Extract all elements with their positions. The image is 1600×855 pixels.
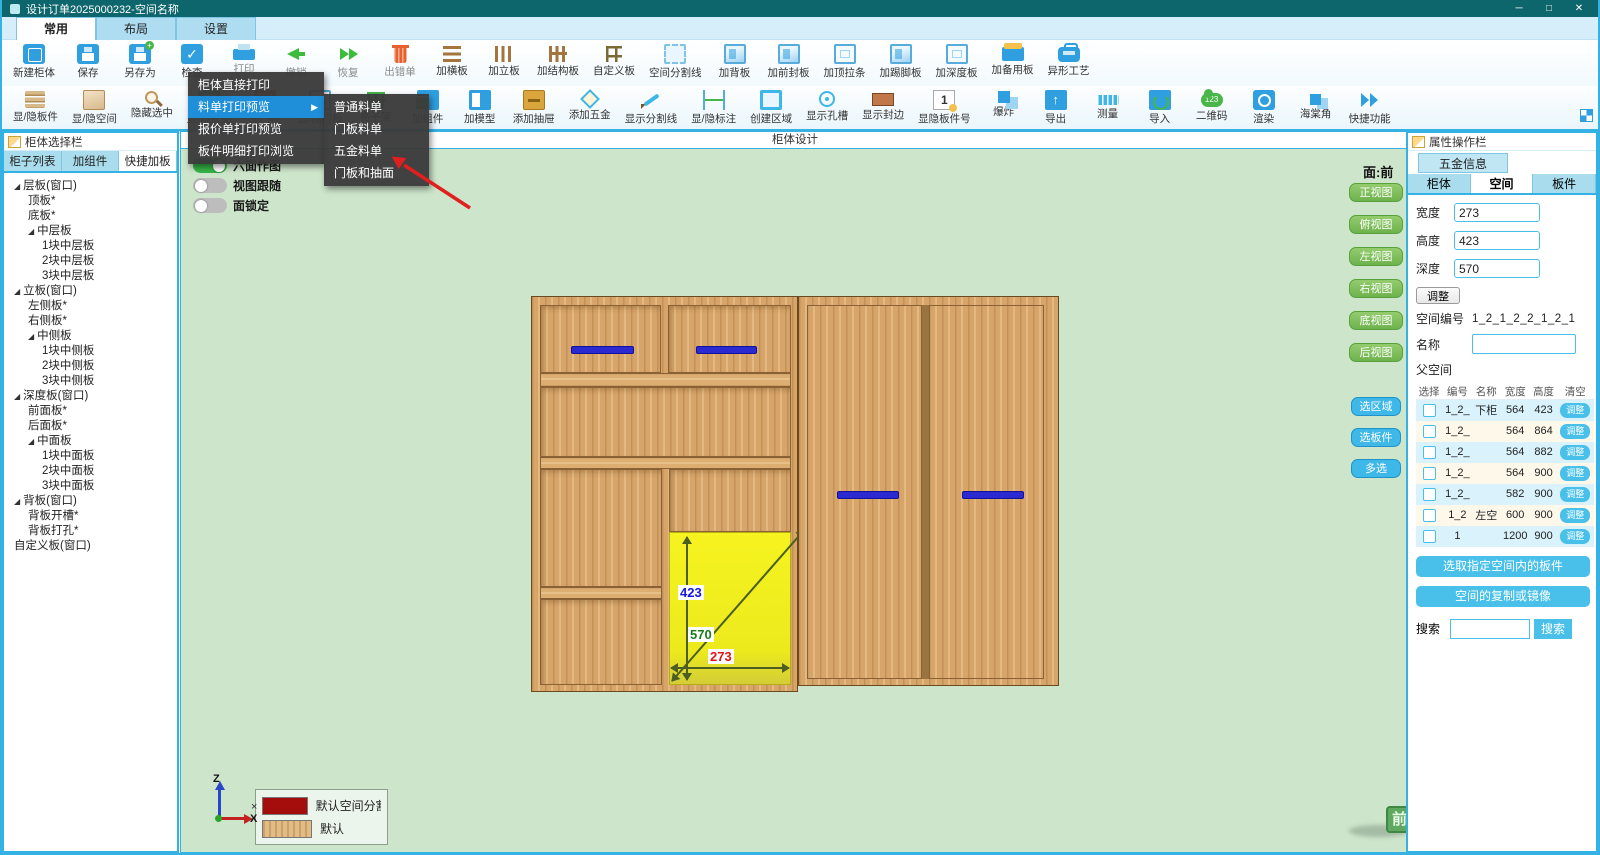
export-button[interactable]: ↑导出 bbox=[1030, 86, 1082, 126]
table-cell-name bbox=[1473, 442, 1500, 463]
measure-icon bbox=[1097, 95, 1119, 105]
measure-button[interactable]: 测量 bbox=[1082, 86, 1134, 121]
tree-expand-icon[interactable]: ◢ bbox=[28, 437, 34, 446]
name-label: 名称 bbox=[1416, 336, 1472, 353]
table-header-选择: 选择 bbox=[1416, 384, 1442, 400]
action-button-选取指定空间内的板件[interactable]: 选取指定空间内的板件 bbox=[1416, 556, 1590, 577]
tree-expand-icon[interactable]: ◢ bbox=[28, 332, 34, 341]
add-hardware-icon bbox=[580, 89, 600, 109]
toggle-视图跟随[interactable]: 视图跟随 bbox=[193, 177, 281, 194]
corner-cut-icon bbox=[1310, 94, 1321, 105]
left-tab-快捷加板[interactable]: 快捷加板 bbox=[119, 151, 177, 171]
qrcode-button[interactable]: 123二维码 bbox=[1186, 86, 1238, 123]
table-cell-width: 600 bbox=[1500, 505, 1530, 526]
cabinet-right-unit[interactable] bbox=[798, 296, 1059, 686]
add-model-button[interactable]: 加模型 bbox=[454, 86, 506, 126]
select-button-多选[interactable]: 多选 bbox=[1351, 459, 1401, 478]
table-row[interactable]: 1_2_564864调整 bbox=[1416, 421, 1594, 442]
toolbar-item-label: 加背板 bbox=[716, 65, 754, 80]
close-button[interactable]: ✕ bbox=[1564, 0, 1594, 17]
tree-item-自定义板(窗口)[interactable]: 自定义板(窗口) bbox=[4, 539, 177, 554]
tree-expand-icon[interactable]: ◢ bbox=[14, 497, 20, 506]
note-icon bbox=[1412, 136, 1425, 148]
tree-item-顶板*[interactable]: 顶板* bbox=[4, 194, 177, 209]
toggle-switch[interactable] bbox=[193, 178, 227, 193]
drawer-compartment-right[interactable] bbox=[668, 305, 791, 373]
ribbon-tab-设置[interactable]: 设置 bbox=[176, 17, 256, 40]
add-backboard-icon bbox=[724, 44, 746, 64]
show-space-button[interactable]: 显/隐空间 bbox=[65, 86, 124, 126]
minimize-button[interactable]: ─ bbox=[1504, 0, 1534, 17]
row-adjust-button[interactable]: 调整 bbox=[1560, 424, 1590, 439]
tree-item-label: 左侧板* bbox=[28, 300, 67, 312]
field-高度: 高度 bbox=[1416, 231, 1590, 250]
toolbar-item-label: 加模型 bbox=[461, 111, 499, 126]
adjust-button[interactable]: 调整 bbox=[1416, 287, 1460, 304]
custom-board-button[interactable]: 自定义板 bbox=[586, 40, 642, 78]
add-depthboard-button[interactable]: 加深度板 bbox=[929, 40, 985, 80]
show-dimension-button[interactable]: 显/隐标注 bbox=[684, 86, 743, 126]
axis-x-arrow bbox=[219, 817, 245, 820]
door-handle-left bbox=[837, 491, 899, 499]
create-region-button[interactable]: 创建区域 bbox=[743, 86, 799, 126]
submenu-arrow-icon: ▶ bbox=[311, 96, 318, 118]
toolbar-item-label: 显/隐板件 bbox=[13, 109, 58, 124]
table-row[interactable]: 1_2_582900调整 bbox=[1416, 484, 1594, 505]
cabinet-select-panel: 柜体选择栏 柜子列表加组件快捷加板 ◢层板(窗口)顶板*底板*◢中层板1块中层板… bbox=[2, 131, 179, 853]
tree-item-label: 背板开槽* bbox=[28, 510, 78, 522]
row-adjust-button[interactable]: 调整 bbox=[1560, 487, 1590, 502]
qrcode-icon: 123 bbox=[1201, 93, 1223, 107]
import-button[interactable]: 导入 bbox=[1134, 86, 1186, 126]
show-splitline-icon bbox=[640, 90, 662, 110]
add-vboard-button[interactable]: 加立板 bbox=[478, 40, 530, 78]
save-as-button[interactable]: +另存为 bbox=[114, 40, 166, 80]
explode-button[interactable]: 爆炸 bbox=[978, 86, 1030, 119]
open-compartment-wide[interactable] bbox=[540, 387, 791, 457]
table-cell-height: 423 bbox=[1530, 400, 1556, 421]
cabinet-rail bbox=[540, 373, 791, 387]
table-cell-select bbox=[1416, 484, 1442, 505]
show-edgeband-button[interactable]: 显示封边 bbox=[855, 86, 911, 122]
toolbar-item-label: 异形工艺 bbox=[1048, 63, 1090, 78]
canvas-title: 柜体设计 bbox=[772, 134, 818, 146]
table-row[interactable]: 1_2_下柜564423调整 bbox=[1416, 400, 1594, 421]
tree-item-1块中层板[interactable]: 1块中层板 bbox=[4, 239, 177, 254]
tree-expand-icon[interactable]: ◢ bbox=[14, 182, 20, 191]
tree-item-label: 1块中层板 bbox=[42, 240, 94, 252]
tree-item-label: 2块中层板 bbox=[42, 255, 94, 267]
space-splitline-button[interactable]: 空间分割线 bbox=[642, 40, 709, 80]
panel-number-icon: 1 bbox=[933, 90, 955, 110]
field-label: 深度 bbox=[1416, 260, 1454, 277]
tree-item-label: 3块中面板 bbox=[42, 480, 94, 492]
tree-item-label: 背板(窗口) bbox=[23, 495, 77, 507]
tree-item-背板(窗口)[interactable]: ◢背板(窗口) bbox=[4, 494, 177, 509]
row-adjust-button[interactable]: 调整 bbox=[1560, 466, 1590, 481]
legend-label: 默认空间分割 bbox=[316, 797, 381, 814]
toolbar-item-label: 显示封边 bbox=[862, 107, 904, 122]
face-label: 面:前 bbox=[1363, 162, 1393, 181]
table-cell-width: 564 bbox=[1500, 463, 1530, 484]
table-row[interactable]: 11200900调整 bbox=[1416, 526, 1594, 547]
custom-board-icon bbox=[606, 46, 622, 62]
toolbar-item-label: 创建区域 bbox=[750, 111, 792, 126]
ribbon-tab-常用[interactable]: 常用 bbox=[16, 17, 96, 40]
tree-item-3块中层板[interactable]: 3块中层板 bbox=[4, 269, 177, 284]
drawer-compartment-left[interactable] bbox=[540, 305, 661, 373]
window-title: 设计订单2025000232-空间名称 bbox=[26, 1, 179, 17]
show-panels-button[interactable]: 显/隐板件 bbox=[6, 86, 65, 124]
show-edgeband-icon bbox=[872, 93, 894, 106]
toolbar-item-label: 新建柜体 bbox=[13, 65, 55, 80]
table-cell-number: 1 bbox=[1442, 526, 1472, 547]
submenu-item-门板料单[interactable]: 门板料单 bbox=[324, 118, 429, 140]
add-spareboard-button[interactable]: 加备用板 bbox=[985, 40, 1041, 77]
ribbon-tab-布局[interactable]: 布局 bbox=[96, 17, 176, 40]
tree-item-深度板(窗口)[interactable]: ◢深度板(窗口) bbox=[4, 389, 177, 404]
field-input-高度[interactable] bbox=[1454, 231, 1540, 250]
cabinet-new-button[interactable]: 新建柜体 bbox=[6, 40, 62, 80]
search-button[interactable]: 搜索 bbox=[1534, 619, 1572, 639]
add-drawer-button[interactable]: 添加抽屉 bbox=[506, 86, 562, 126]
drawer-handle-right bbox=[696, 346, 757, 354]
left-column-compartment-top[interactable] bbox=[540, 469, 662, 587]
tree-item-label: 层板(窗口) bbox=[23, 180, 77, 192]
height-dimension-line bbox=[686, 537, 688, 680]
row-checkbox[interactable] bbox=[1423, 530, 1436, 543]
door-handle-right bbox=[962, 491, 1024, 499]
tree-item-2块中侧板[interactable]: 2块中侧板 bbox=[4, 359, 177, 374]
tree-item-3块中面板[interactable]: 3块中面板 bbox=[4, 479, 177, 494]
add-structboard-icon bbox=[549, 46, 567, 62]
save-button[interactable]: 保存 bbox=[62, 40, 114, 80]
right-panel-header: 属性操作栏 bbox=[1408, 133, 1596, 151]
hide-selected-icon bbox=[145, 91, 158, 104]
table-cell-name bbox=[1473, 484, 1500, 505]
cabinet-rail bbox=[540, 457, 791, 469]
field-label: 宽度 bbox=[1416, 204, 1454, 221]
tree-item-label: 背板打孔* bbox=[28, 525, 78, 537]
view-button-后视图[interactable]: 后视图 bbox=[1349, 343, 1403, 362]
table-cell-width: 564 bbox=[1500, 442, 1530, 463]
table-cell-number: 1_2_ bbox=[1442, 400, 1472, 421]
print-button[interactable]: 打印 bbox=[218, 40, 270, 76]
tree-item-左侧板*[interactable]: 左侧板* bbox=[4, 299, 177, 314]
tree-item-底板*[interactable]: 底板* bbox=[4, 209, 177, 224]
render-icon bbox=[1253, 90, 1275, 110]
tree-item-label: 2块中面板 bbox=[42, 465, 94, 477]
toolbar-more-icon[interactable] bbox=[1581, 110, 1592, 121]
table-cell-height: 900 bbox=[1530, 505, 1556, 526]
add-structboard-button[interactable]: 加结构板 bbox=[530, 40, 586, 78]
table-cell-height: 900 bbox=[1530, 526, 1556, 547]
space-number-value: 1_2_1_2_2_1_2_1 bbox=[1472, 313, 1575, 325]
toolbar-item-label: 加立板 bbox=[485, 63, 523, 78]
table-cell-select bbox=[1416, 505, 1442, 526]
add-hboard-icon bbox=[443, 46, 461, 62]
table-cell-clear: 调整 bbox=[1557, 484, 1594, 505]
legend-swatch-red bbox=[262, 797, 308, 815]
cabinet-rail bbox=[540, 587, 662, 599]
explode-icon bbox=[998, 91, 1010, 103]
tree-item-label: 底板* bbox=[28, 210, 55, 222]
add-backboard-button[interactable]: 加背板 bbox=[709, 40, 761, 80]
add-hboard-button[interactable]: 加横板 bbox=[426, 40, 478, 78]
panel-number-button[interactable]: 1显隐板件号 bbox=[911, 86, 978, 126]
tree-item-层板(窗口)[interactable]: ◢层板(窗口) bbox=[4, 179, 177, 194]
menu-item-料单打印预览[interactable]: 料单打印预览▶ bbox=[188, 96, 324, 118]
tree-item-1块中面板[interactable]: 1块中面板 bbox=[4, 449, 177, 464]
tree-item-label: 自定义板(窗口) bbox=[14, 540, 91, 552]
table-cell-width: 564 bbox=[1500, 421, 1530, 442]
row-checkbox[interactable] bbox=[1423, 509, 1436, 522]
quick-functions-button[interactable]: 快捷功能 bbox=[1342, 86, 1398, 126]
row-adjust-button[interactable]: 调整 bbox=[1560, 403, 1590, 418]
toggle-switch[interactable] bbox=[193, 198, 227, 213]
table-cell-clear: 调整 bbox=[1557, 505, 1594, 526]
tree-item-1块中侧板[interactable]: 1块中侧板 bbox=[4, 344, 177, 359]
show-holeslot-button[interactable]: 显示孔槽 bbox=[799, 86, 855, 123]
table-cell-number: 1_2_ bbox=[1442, 463, 1472, 484]
hide-selected-button[interactable]: 隐藏选中 bbox=[124, 86, 180, 120]
legend-label: 默认 bbox=[320, 820, 344, 837]
toolbar-item-label: 显隐板件号 bbox=[918, 111, 971, 126]
export-icon: ↑ bbox=[1045, 90, 1067, 110]
toolbar-item-label: 加深度板 bbox=[936, 65, 978, 80]
tree-item-label: 2块中侧板 bbox=[42, 360, 94, 372]
shaped-craft-icon bbox=[1058, 47, 1080, 62]
tree-item-2块中层板[interactable]: 2块中层板 bbox=[4, 254, 177, 269]
scene[interactable]: 六面作图视图跟随面锁定 面:前 正视图俯视图左视图右视图底视图后视图 选区域选板… bbox=[181, 149, 1409, 852]
toggle-knob bbox=[195, 200, 207, 212]
table-cell-select bbox=[1416, 463, 1442, 484]
dimension-fields: 宽度高度深度 bbox=[1416, 203, 1590, 278]
table-cell-height: 882 bbox=[1530, 442, 1556, 463]
toolbar-item-label: 添加五金 bbox=[569, 107, 611, 122]
left-panel-tabs: 柜子列表加组件快捷加板 bbox=[4, 151, 177, 173]
render-button[interactable]: 渲染 bbox=[1238, 86, 1290, 126]
toggle-面锁定[interactable]: 面锁定 bbox=[193, 197, 269, 214]
toolbar-item-label: 显/隐空间 bbox=[72, 111, 117, 126]
table-cell-height: 900 bbox=[1530, 484, 1556, 505]
menu-item-报价单打印预览[interactable]: 报价单打印预览 bbox=[188, 118, 324, 140]
table-row[interactable]: 1_2左空600900调整 bbox=[1416, 505, 1594, 526]
select-button-选区域[interactable]: 选区域 bbox=[1351, 397, 1401, 416]
axis-origin-dot bbox=[215, 815, 222, 822]
tree-item-2块中面板[interactable]: 2块中面板 bbox=[4, 464, 177, 479]
name-input[interactable] bbox=[1472, 334, 1576, 354]
right-tab-空间[interactable]: 空间 bbox=[1471, 174, 1534, 193]
left-tab-柜子列表[interactable]: 柜子列表 bbox=[4, 151, 62, 171]
space-table: 选择编号名称宽度高度清空 1_2_下柜564423调整1_2_564864调整1… bbox=[1416, 384, 1594, 547]
toolbar-item-label: 加顶拉条 bbox=[824, 65, 866, 80]
save-icon bbox=[77, 44, 99, 64]
table-cell-select bbox=[1416, 400, 1442, 421]
tree-item-前面板*[interactable]: 前面板* bbox=[4, 404, 177, 419]
toolbar-item-label: 保存 bbox=[69, 65, 107, 80]
toolbar-item-label: 显示孔槽 bbox=[806, 108, 848, 123]
tab-hardware-info[interactable]: 五金信息 bbox=[1418, 153, 1508, 173]
toolbar-item-label: 测量 bbox=[1089, 106, 1127, 121]
submenu-item-普通料单[interactable]: 普通料单 bbox=[324, 96, 429, 118]
table-cell-number: 1_2 bbox=[1442, 505, 1472, 526]
axis-z-arrow bbox=[218, 789, 221, 817]
row-adjust-button[interactable]: 调整 bbox=[1560, 508, 1590, 523]
table-cell-name bbox=[1473, 421, 1500, 442]
toolbar-item-label: 海棠角 bbox=[1297, 106, 1335, 121]
design-canvas[interactable]: 柜体设计 六面作图视图跟随面锁定 面:前 正视图俯视图左视图右视图底视图后视图 … bbox=[180, 131, 1410, 853]
view-button-左视图[interactable]: 左视图 bbox=[1349, 247, 1403, 266]
board-tree: ◢层板(窗口)顶板*底板*◢中层板1块中层板2块中层板3块中层板◢立板(窗口)左… bbox=[4, 173, 177, 554]
view-button-底视图[interactable]: 底视图 bbox=[1349, 311, 1403, 330]
axis-x-label: X bbox=[250, 813, 257, 825]
tree-item-中侧板[interactable]: ◢中侧板 bbox=[4, 329, 177, 344]
right-tab-柜体[interactable]: 柜体 bbox=[1408, 174, 1471, 193]
width-dimension-line bbox=[671, 667, 789, 669]
view-button-俯视图[interactable]: 俯视图 bbox=[1349, 215, 1403, 234]
table-header-编号: 编号 bbox=[1442, 384, 1472, 400]
create-region-icon bbox=[760, 90, 782, 110]
row-adjust-button[interactable]: 调整 bbox=[1560, 529, 1590, 544]
print-context-menu: 柜体直接打印料单打印预览▶报价单打印预览板件明细打印浏览 bbox=[188, 72, 324, 164]
add-frontboard-button[interactable]: 加前封板 bbox=[761, 40, 817, 80]
cursor-cross: × bbox=[251, 801, 257, 813]
right-panel-body: 宽度高度深度 调整 空间编号 1_2_1_2_2_1_2_1 名称 父空间 选择… bbox=[1408, 195, 1596, 639]
add-kickboard-button[interactable]: 加踢脚板 bbox=[873, 40, 929, 80]
field-label: 高度 bbox=[1416, 232, 1454, 249]
table-cell-clear: 调整 bbox=[1557, 526, 1594, 547]
table-header-宽度: 宽度 bbox=[1500, 384, 1530, 400]
search-label: 搜索 bbox=[1416, 620, 1450, 637]
tree-item-label: 深度板(窗口) bbox=[23, 390, 88, 402]
row-checkbox[interactable] bbox=[1423, 404, 1436, 417]
action-button-空间的复制或镜像[interactable]: 空间的复制或镜像 bbox=[1416, 586, 1590, 607]
toolbar-item-label: 显/隐标注 bbox=[691, 111, 736, 126]
toolbar-item-label: 加结构板 bbox=[537, 63, 579, 78]
row-checkbox[interactable] bbox=[1423, 488, 1436, 501]
view-button-右视图[interactable]: 右视图 bbox=[1349, 279, 1403, 298]
corner-cut-button[interactable]: 海棠角 bbox=[1290, 86, 1342, 121]
table-cell-height: 900 bbox=[1530, 463, 1556, 484]
table-row[interactable]: 1_2_564900调整 bbox=[1416, 463, 1594, 484]
search-input[interactable] bbox=[1450, 619, 1530, 639]
check-icon: ✓ bbox=[181, 44, 203, 64]
tree-item-label: 前面板* bbox=[28, 405, 67, 417]
tree-item-背板开槽*[interactable]: 背板开槽* bbox=[4, 509, 177, 524]
toolbar-item-label: 添加抽屉 bbox=[513, 111, 555, 126]
maximize-button[interactable]: □ bbox=[1534, 0, 1564, 17]
show-splitline-button[interactable]: 显示分割线 bbox=[618, 86, 685, 126]
compartment-above-selection[interactable] bbox=[669, 469, 791, 532]
tree-item-背板打孔*[interactable]: 背板打孔* bbox=[4, 524, 177, 539]
table-cell-number: 1_2_ bbox=[1442, 442, 1472, 463]
annotation-arrow bbox=[382, 150, 482, 220]
table-cell-clear: 调整 bbox=[1557, 421, 1594, 442]
toolbar-item-label: 加前封板 bbox=[768, 65, 810, 80]
right-tab-板件[interactable]: 板件 bbox=[1533, 174, 1596, 193]
toolbar-item-label: 自定义板 bbox=[593, 63, 635, 78]
row-checkbox[interactable] bbox=[1423, 425, 1436, 438]
toolbar-item-label: 加备用板 bbox=[992, 62, 1034, 77]
toolbar-item-label: 加踢脚板 bbox=[880, 65, 922, 80]
left-tab-加组件[interactable]: 加组件 bbox=[62, 151, 120, 171]
window-controls: ─□✕ bbox=[1504, 0, 1594, 17]
toolbar-item-label: 渲染 bbox=[1245, 111, 1283, 126]
left-column-compartment-bottom[interactable] bbox=[540, 599, 662, 685]
table-cell-width: 564 bbox=[1500, 400, 1530, 421]
add-frontboard-icon bbox=[778, 44, 800, 64]
cabinet-new-icon bbox=[23, 44, 45, 64]
field-input-宽度[interactable] bbox=[1454, 203, 1540, 222]
door-gap bbox=[922, 305, 929, 679]
table-cell-name bbox=[1473, 526, 1500, 547]
view-button-正视图[interactable]: 正视图 bbox=[1349, 183, 1403, 202]
cabinet-left-unit[interactable]: 423 570 273 bbox=[531, 296, 798, 692]
tree-expand-icon[interactable]: ◢ bbox=[14, 287, 20, 296]
toolbar-item-label: 空间分割线 bbox=[649, 65, 702, 80]
shaped-craft-button[interactable]: 异形工艺 bbox=[1041, 40, 1097, 78]
row-adjust-button[interactable]: 调整 bbox=[1560, 445, 1590, 460]
add-depthboard-icon bbox=[946, 44, 968, 64]
toolbar-item-label: 显示分割线 bbox=[625, 111, 678, 126]
toolbar-item-label: 快捷功能 bbox=[1349, 111, 1391, 126]
tree-item-中面板[interactable]: ◢中面板 bbox=[4, 434, 177, 449]
add-spareboard-icon bbox=[1002, 47, 1024, 61]
tree-item-3块中侧板[interactable]: 3块中侧板 bbox=[4, 374, 177, 389]
width-dimension-value: 273 bbox=[708, 649, 734, 664]
app-window: 设计订单2025000232-空间名称 ─□✕ 常用布局设置 新建柜体保存+另存… bbox=[0, 0, 1600, 855]
select-button-选板件[interactable]: 选板件 bbox=[1351, 428, 1401, 447]
add-hardware-button[interactable]: 添加五金 bbox=[562, 86, 618, 122]
tree-item-label: 右侧板* bbox=[28, 315, 67, 327]
row-checkbox[interactable] bbox=[1423, 446, 1436, 459]
tree-item-立板(窗口)[interactable]: ◢立板(窗口) bbox=[4, 284, 177, 299]
print-icon bbox=[233, 49, 255, 60]
show-panels-icon bbox=[25, 91, 45, 108]
tree-item-label: 3块中侧板 bbox=[42, 375, 94, 387]
table-row[interactable]: 1_2_564882调整 bbox=[1416, 442, 1594, 463]
height-dimension-value: 423 bbox=[678, 585, 704, 600]
row-checkbox[interactable] bbox=[1423, 467, 1436, 480]
tree-item-label: 1块中面板 bbox=[42, 450, 94, 462]
toolbar-item-label: 导出 bbox=[1037, 111, 1075, 126]
tree-item-右侧板*[interactable]: 右侧板* bbox=[4, 314, 177, 329]
left-panel-header: 柜体选择栏 bbox=[4, 133, 177, 151]
redo-button[interactable]: 恢复 bbox=[322, 40, 374, 80]
drawer-handle-left bbox=[571, 346, 634, 354]
field-深度: 深度 bbox=[1416, 259, 1590, 278]
show-holeslot-icon bbox=[819, 91, 835, 107]
toggle-label: 视图跟随 bbox=[233, 177, 281, 194]
show-space-icon bbox=[83, 90, 105, 110]
table-cell-clear: 调整 bbox=[1557, 400, 1594, 421]
table-cell-number: 1_2_ bbox=[1442, 421, 1472, 442]
property-panel: 属性操作栏 五金信息 柜体空间板件 宽度高度深度 调整 空间编号 1_2_1_2… bbox=[1406, 131, 1598, 853]
tree-expand-icon[interactable]: ◢ bbox=[14, 392, 20, 401]
menu-item-柜体直接打印[interactable]: 柜体直接打印 bbox=[188, 74, 324, 96]
material-legend: 默认空间分割默认 bbox=[255, 789, 388, 845]
trash-button[interactable]: 出错单 bbox=[374, 40, 426, 79]
redo-icon bbox=[337, 44, 359, 64]
field-input-深度[interactable] bbox=[1454, 259, 1540, 278]
tree-expand-icon[interactable]: ◢ bbox=[28, 227, 34, 236]
add-topbar-button[interactable]: 加顶拉条 bbox=[817, 40, 873, 80]
tree-item-中层板[interactable]: ◢中层板 bbox=[4, 224, 177, 239]
menu-item-板件明细打印浏览[interactable]: 板件明细打印浏览 bbox=[188, 140, 324, 162]
legend-row: 默认空间分割 bbox=[262, 794, 381, 817]
tree-item-后面板*[interactable]: 后面板* bbox=[4, 419, 177, 434]
